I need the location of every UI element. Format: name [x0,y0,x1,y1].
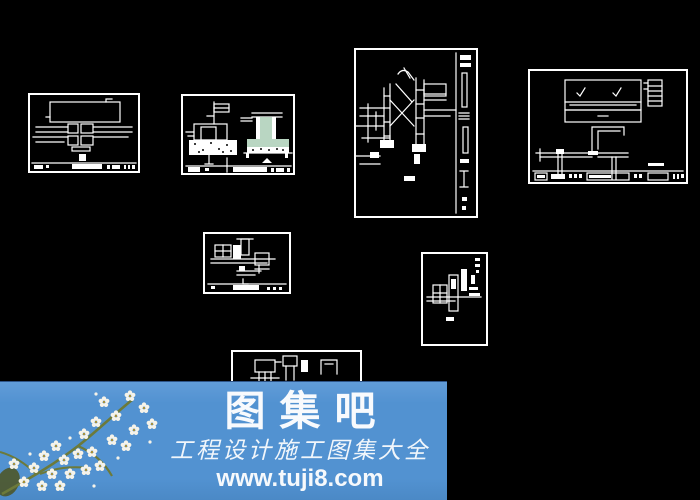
sheet-4-linework [530,71,686,182]
drawing-sheet-6 [421,252,488,346]
drawing-sheet-2 [181,94,295,175]
sheet-6-linework [423,254,486,344]
cad-collage-screenshot: { "canvas": { "background": "#000000", "… [0,0,700,499]
drawing-sheet-4 [528,69,688,184]
sheet-2-linework [183,96,293,173]
sheet-3-linework [356,50,476,216]
sheet-1-linework [30,95,138,171]
drawing-sheet-5 [203,232,291,294]
sheet-5-linework [205,234,289,292]
watermark-site-name: 图集吧 [152,388,448,434]
drawing-sheet-3 [354,48,478,218]
watermark-text-block: 图集吧 工程设计施工图集大全 www.tuji8.com [152,382,448,500]
drawing-sheet-1 [28,93,140,173]
watermark-tagline: 工程设计施工图集大全 [152,438,448,464]
watermark-url: www.tuji8.com [152,466,448,492]
watermark-band: 图集吧 工程设计施工图集大全 www.tuji8.com [0,381,447,500]
